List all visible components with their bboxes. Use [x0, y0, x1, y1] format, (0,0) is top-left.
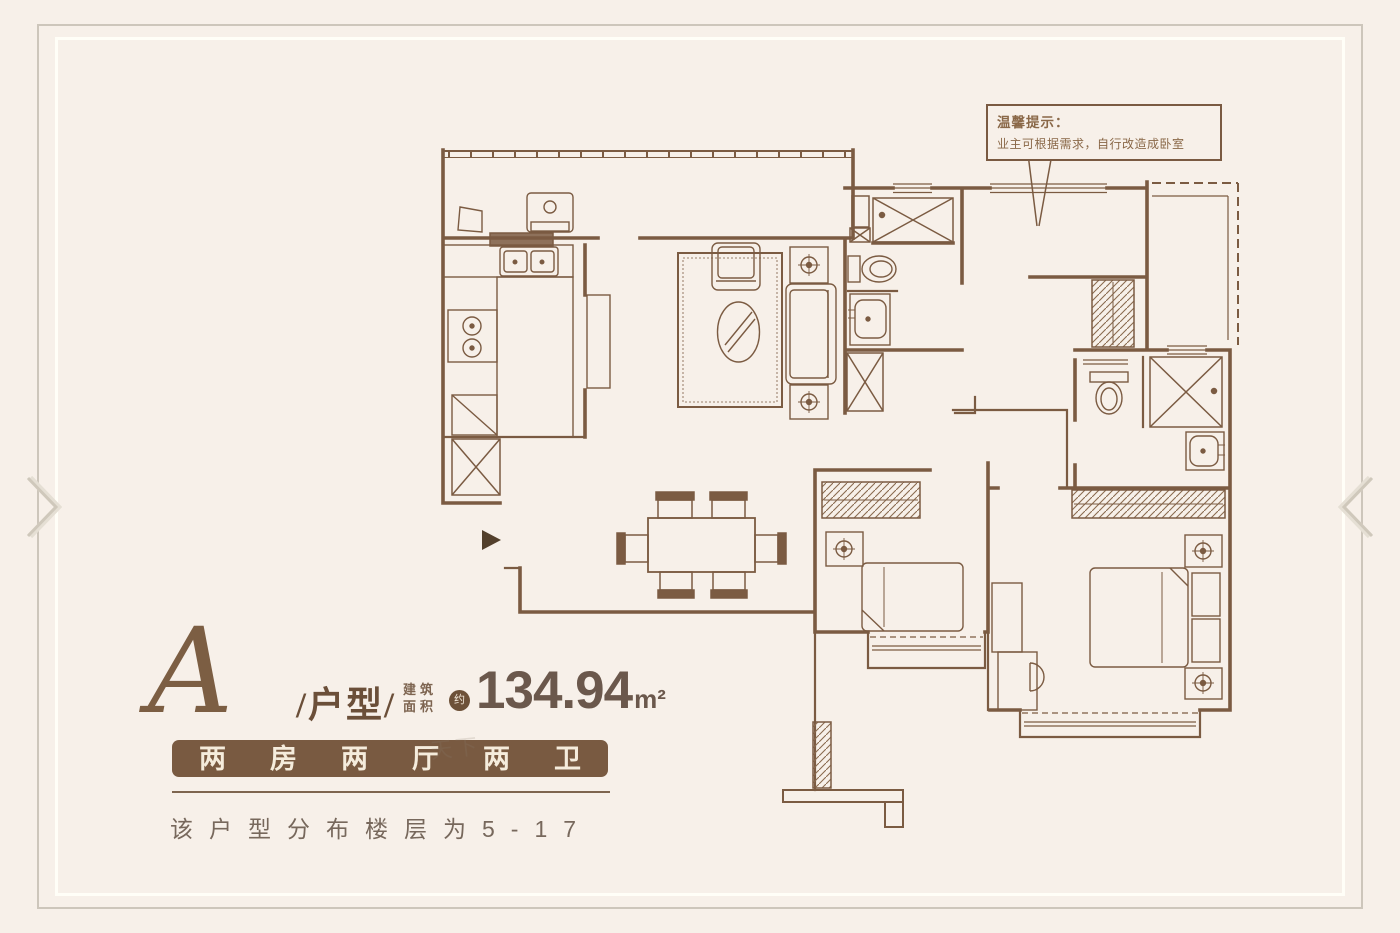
chair-icon — [658, 572, 694, 598]
sliding-door — [587, 295, 610, 388]
area-unit: m² — [634, 684, 666, 715]
chair-icon — [711, 572, 747, 598]
living-room — [678, 243, 836, 419]
chevron-right-icon — [30, 478, 58, 536]
chair-icon — [656, 492, 694, 518]
duct-shaft — [847, 353, 883, 411]
coffee-table-icon — [718, 302, 760, 362]
chair-icon — [710, 492, 747, 518]
duct-shaft — [452, 439, 500, 495]
callout-title: 温馨提示： — [997, 111, 1211, 131]
sink-icon — [848, 294, 890, 345]
kitchen-sink-icon — [500, 247, 558, 276]
callout-pointer — [1028, 154, 1052, 226]
side-table-lamp-icon — [790, 385, 828, 419]
headboard-cabinet — [1192, 573, 1220, 616]
balcony-rail — [443, 151, 853, 158]
area-label: 建筑 面积 — [403, 681, 437, 715]
page: 温馨提示： 业主可根据需求，自行改造成卧室 A /户型/ 建筑 面积 约 134… — [0, 0, 1400, 933]
headboard-cabinet — [1192, 619, 1220, 662]
next-slide-button[interactable] — [1334, 472, 1378, 542]
divider-line — [172, 791, 610, 793]
entry-arrow-icon — [482, 530, 501, 550]
toilet-icon — [848, 256, 896, 282]
bedroom-2 — [826, 532, 963, 631]
bed-icon — [862, 563, 963, 631]
washing-machine-icon — [527, 193, 573, 232]
unit-type-label: /户型/ — [296, 676, 396, 728]
shower-icon — [1150, 357, 1222, 427]
armchair-icon — [712, 243, 760, 290]
dining-table-icon — [648, 518, 755, 572]
watermark: 天下 — [428, 728, 481, 765]
fridge-icon — [452, 395, 497, 435]
bed-icon — [1090, 568, 1188, 667]
balcony-top-right — [1152, 183, 1238, 345]
callout-box: 温馨提示： 业主可根据需求，自行改造成卧室 — [986, 104, 1222, 161]
chair-icon — [617, 533, 648, 564]
area-value-row: 134.94 m² — [476, 660, 666, 721]
windows — [870, 184, 1207, 726]
chevron-left-icon — [1342, 478, 1370, 536]
area-value: 134.94 — [476, 660, 632, 721]
laundry-balcony — [458, 193, 573, 232]
prev-slide-button[interactable] — [22, 472, 66, 542]
stove-icon — [448, 310, 497, 362]
nightstand-lamp-icon — [1185, 668, 1222, 699]
mop-basin-icon — [458, 207, 482, 232]
rug — [678, 253, 782, 407]
nightstand-lamp-icon — [1185, 535, 1222, 567]
toilet-icon — [1090, 372, 1128, 414]
dresser-stool-icon — [992, 583, 1044, 710]
unit-type-letter: A — [148, 612, 233, 730]
floors-note: 该户型分布楼层为5-17 — [170, 810, 592, 844]
nightstand-lamp-icon — [826, 532, 863, 566]
chair-icon — [755, 533, 786, 564]
bathroom-master — [1090, 372, 1225, 470]
side-table-lamp-icon — [790, 247, 828, 283]
dining-set — [617, 492, 786, 598]
approx-badge: 约 — [449, 690, 470, 711]
bedroom-master — [992, 535, 1222, 710]
shower-icon — [873, 198, 953, 242]
sink-icon — [1186, 432, 1225, 470]
sofa-icon — [786, 284, 836, 384]
bathroom-common — [848, 256, 896, 345]
layout-banner: 两房两厅两卫 — [172, 740, 608, 777]
callout-body: 业主可根据需求，自行改造成卧室 — [997, 135, 1211, 152]
